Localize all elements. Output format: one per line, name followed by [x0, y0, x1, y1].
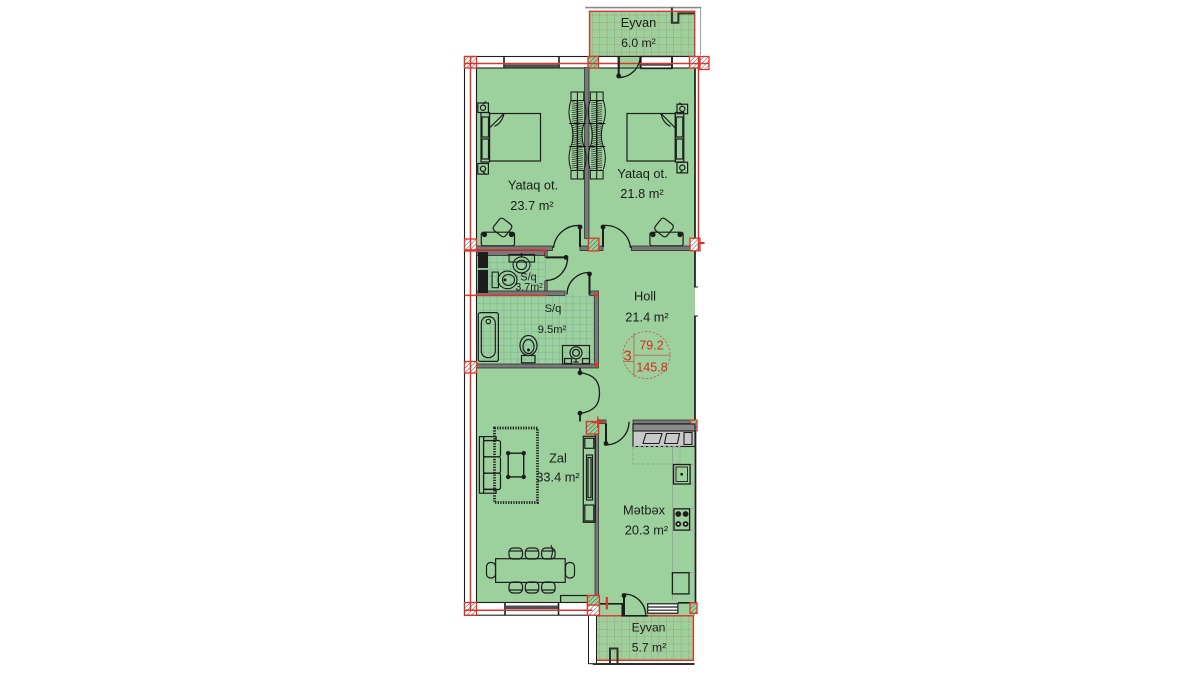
svg-text:5.7 m²: 5.7 m²	[632, 641, 667, 655]
svg-text:Holl: Holl	[634, 289, 656, 304]
svg-text:145.8: 145.8	[636, 361, 667, 375]
svg-text:79.2: 79.2	[639, 339, 663, 353]
svg-text:S/q: S/q	[545, 303, 562, 315]
svg-text:6.0 m²: 6.0 m²	[621, 36, 656, 50]
svg-text:33.4 m²: 33.4 m²	[536, 470, 580, 485]
svg-text:3.7m²: 3.7m²	[515, 282, 543, 294]
svg-text:Yataq ot.: Yataq ot.	[617, 166, 667, 181]
svg-text:21.8 m²: 21.8 m²	[620, 186, 664, 201]
svg-text:Eyvan: Eyvan	[632, 621, 666, 635]
svg-text:Mətbəx: Mətbəx	[623, 503, 666, 518]
svg-text:3: 3	[623, 348, 631, 365]
svg-text:9.5m²: 9.5m²	[538, 324, 567, 336]
svg-text:Yataq ot.: Yataq ot.	[508, 178, 558, 193]
svg-text:Zal: Zal	[549, 451, 567, 466]
svg-text:21.4 m²: 21.4 m²	[625, 310, 669, 325]
svg-text:23.7 m²: 23.7 m²	[510, 198, 554, 213]
svg-text:20.3 m²: 20.3 m²	[625, 523, 669, 538]
svg-text:Eyvan: Eyvan	[621, 15, 657, 30]
